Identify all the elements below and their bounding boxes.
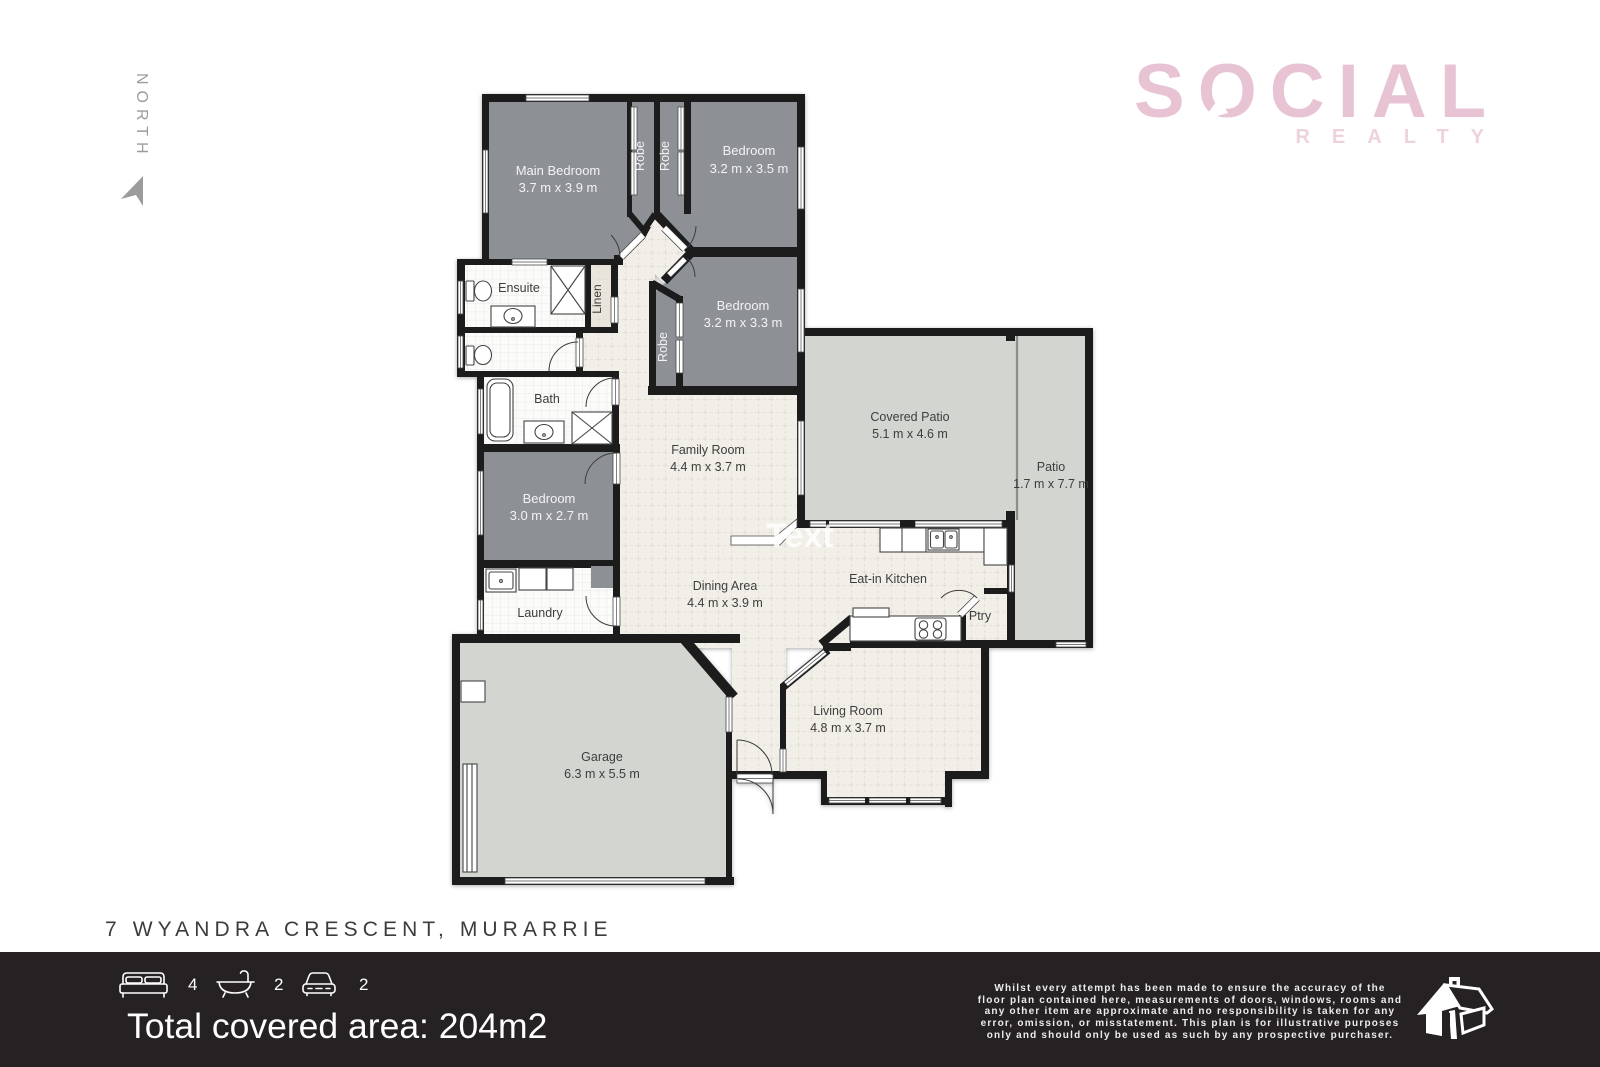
svg-text:3.7 m x 3.9 m: 3.7 m x 3.9 m	[519, 180, 598, 195]
svg-text:4.4 m x 3.9 m: 4.4 m x 3.9 m	[687, 596, 763, 610]
svg-text:Bedroom: Bedroom	[523, 491, 576, 506]
svg-text:3.2 m x 3.5 m: 3.2 m x 3.5 m	[710, 161, 789, 176]
svg-text:Living Room: Living Room	[813, 704, 882, 718]
svg-text:Bedroom: Bedroom	[723, 143, 776, 158]
svg-text:3.2 m x 3.3 m: 3.2 m x 3.3 m	[704, 315, 783, 330]
svg-text:Family Room: Family Room	[671, 443, 745, 457]
svg-text:Garage: Garage	[581, 750, 623, 764]
svg-text:Text: Text	[766, 517, 833, 555]
svg-text:Bath: Bath	[534, 392, 560, 406]
svg-text:7 WYANDRA CRESCENT, MURARRIE: 7 WYANDRA CRESCENT, MURARRIE	[105, 918, 613, 941]
svg-text:3.0 m x 2.7 m: 3.0 m x 2.7 m	[510, 508, 589, 523]
svg-text:Whilst every attempt has been: Whilst every attempt has been made to en…	[994, 983, 1385, 994]
svg-text:floor plan contained here, mea: floor plan contained here, measurements …	[978, 995, 1402, 1006]
svg-text:error, omission, or misstateme: error, omission, or misstatement. This p…	[981, 1018, 1400, 1029]
svg-text:SOCIAL: SOCIAL	[1134, 49, 1499, 134]
svg-text:Covered Patio: Covered Patio	[870, 410, 949, 424]
svg-text:2: 2	[274, 975, 283, 994]
svg-text:Ptry: Ptry	[969, 609, 992, 623]
svg-text:2: 2	[359, 975, 368, 994]
svg-text:4.8 m x 3.7 m: 4.8 m x 3.7 m	[810, 721, 886, 735]
svg-text:Patio: Patio	[1037, 460, 1066, 474]
svg-text:5.1 m x 4.6 m: 5.1 m x 4.6 m	[872, 427, 948, 441]
svg-text:NORTH: NORTH	[133, 73, 150, 160]
svg-text:Bedroom: Bedroom	[717, 298, 770, 313]
svg-text:1.7 m x 7.7 m: 1.7 m x 7.7 m	[1013, 477, 1089, 491]
svg-text:Total covered area: 204m2: Total covered area: 204m2	[127, 1006, 547, 1046]
svg-text:Main Bedroom: Main Bedroom	[516, 163, 601, 178]
svg-text:Robe: Robe	[658, 141, 672, 171]
svg-text:REALTY: REALTY	[1295, 126, 1506, 148]
svg-text:Dining Area: Dining Area	[693, 579, 758, 593]
svg-text:Ensuite: Ensuite	[498, 281, 540, 295]
svg-text:any other item are approximate: any other item are approximate and no re…	[985, 1006, 1396, 1017]
svg-text:6.3 m x 5.5 m: 6.3 m x 5.5 m	[564, 767, 640, 781]
svg-text:only and should only be used a: only and should only be used as such by …	[987, 1030, 1394, 1041]
svg-text:Linen: Linen	[590, 284, 604, 313]
svg-text:4: 4	[188, 975, 197, 994]
svg-text:Laundry: Laundry	[517, 606, 563, 620]
svg-text:Robe: Robe	[656, 332, 670, 362]
svg-text:Eat-in Kitchen: Eat-in Kitchen	[849, 572, 927, 586]
svg-text:Robe: Robe	[633, 141, 647, 171]
svg-text:4.4 m x 3.7 m: 4.4 m x 3.7 m	[670, 460, 746, 474]
